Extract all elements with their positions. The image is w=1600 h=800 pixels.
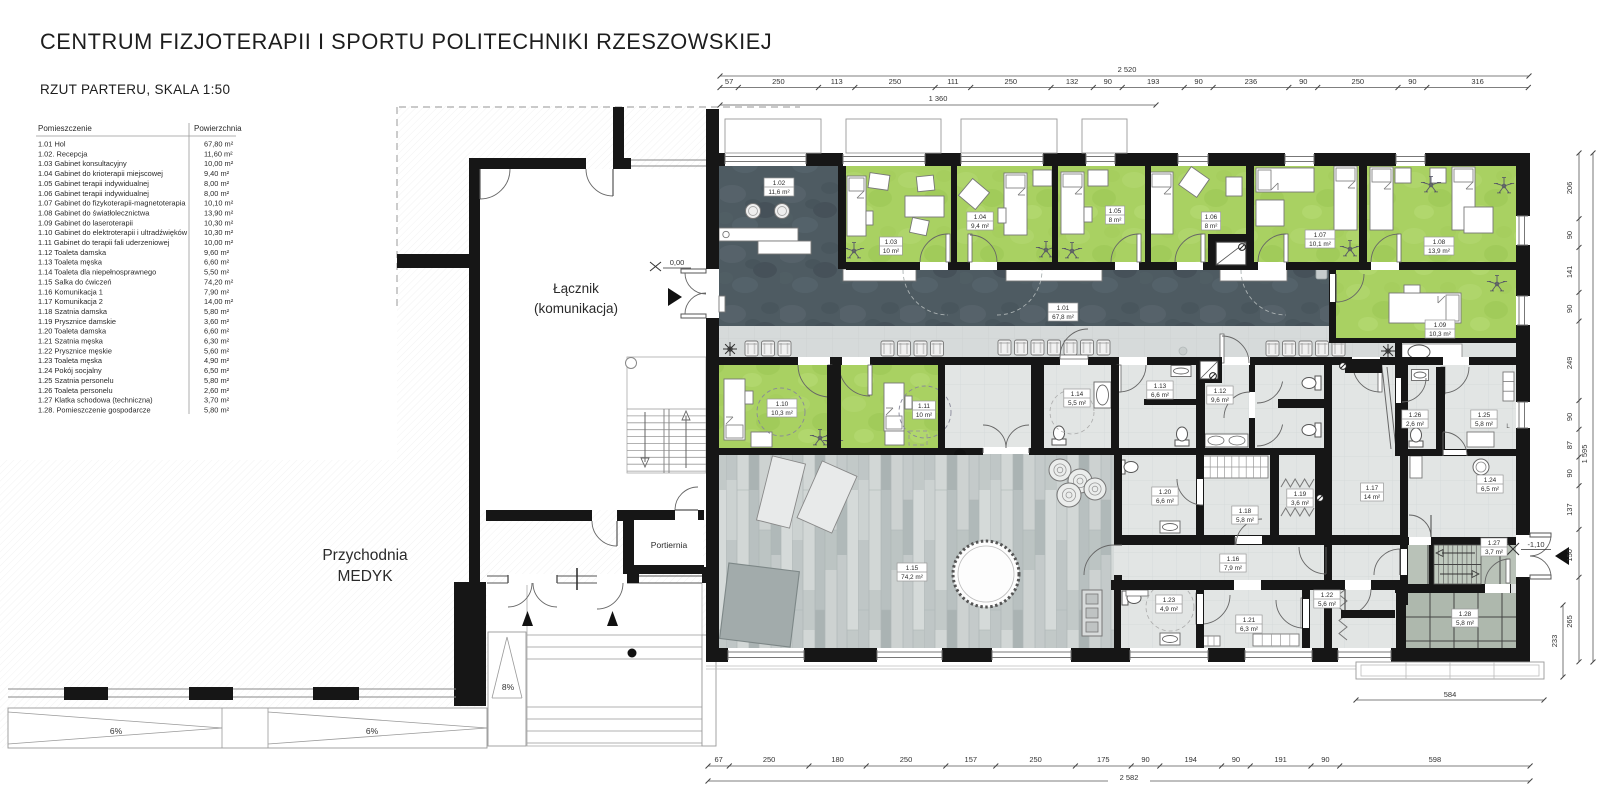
svg-text:3,70 m²: 3,70 m² bbox=[204, 396, 230, 405]
svg-text:5,6 m²: 5,6 m² bbox=[1318, 601, 1336, 608]
svg-text:1.17 Komunikacja 2: 1.17 Komunikacja 2 bbox=[38, 297, 103, 306]
svg-text:1.06 Gabinet terapii indywidua: 1.06 Gabinet terapii indywidualnej bbox=[38, 189, 149, 198]
svg-text:6,50 m²: 6,50 m² bbox=[204, 366, 230, 375]
svg-text:1.28: 1.28 bbox=[1459, 611, 1472, 618]
svg-text:90: 90 bbox=[1408, 77, 1416, 86]
svg-text:1.06: 1.06 bbox=[1205, 214, 1218, 221]
svg-text:175: 175 bbox=[1097, 755, 1110, 764]
svg-text:1.19 Prysznice damskie: 1.19 Prysznice damskie bbox=[38, 317, 116, 326]
svg-text:1.20: 1.20 bbox=[1159, 489, 1172, 496]
svg-text:14,00 m²: 14,00 m² bbox=[204, 297, 234, 306]
svg-text:1.10 Gabinet do elektroterapii: 1.10 Gabinet do elektroterapii i ultradź… bbox=[38, 228, 188, 237]
svg-text:6,60 m²: 6,60 m² bbox=[204, 258, 230, 267]
svg-text:206: 206 bbox=[1565, 182, 1574, 195]
svg-text:1.12: 1.12 bbox=[1214, 388, 1227, 395]
svg-text:90: 90 bbox=[1299, 77, 1307, 86]
svg-text:1.02: 1.02 bbox=[773, 180, 786, 187]
svg-text:3,6 m²: 3,6 m² bbox=[1291, 500, 1309, 507]
svg-text:4,90 m²: 4,90 m² bbox=[204, 356, 230, 365]
svg-text:1.05: 1.05 bbox=[1109, 208, 1122, 215]
svg-text:10,30 m²: 10,30 m² bbox=[204, 228, 234, 237]
svg-text:2,60 m²: 2,60 m² bbox=[204, 386, 230, 395]
svg-text:Pomieszczenie: Pomieszczenie bbox=[38, 124, 92, 133]
svg-text:1.27 Klatka schodowa (technicz: 1.27 Klatka schodowa (techniczna) bbox=[38, 396, 153, 405]
svg-text:5,80 m²: 5,80 m² bbox=[204, 376, 230, 385]
svg-text:250: 250 bbox=[772, 77, 785, 86]
svg-text:1.11 Gabinet do terapii fali u: 1.11 Gabinet do terapii fali uderzeniowe… bbox=[38, 238, 170, 247]
svg-text:1.14 Toaleta dla niepełnospraw: 1.14 Toaleta dla niepełnosprawnego bbox=[38, 268, 156, 277]
svg-text:1.24: 1.24 bbox=[1484, 477, 1497, 484]
svg-text:90: 90 bbox=[1141, 755, 1149, 764]
svg-text:5,50 m²: 5,50 m² bbox=[204, 268, 230, 277]
svg-text:250: 250 bbox=[889, 77, 902, 86]
svg-text:236: 236 bbox=[1245, 77, 1258, 86]
svg-text:67,80 m²: 67,80 m² bbox=[204, 140, 234, 149]
svg-text:1.18 Szatnia damska: 1.18 Szatnia damska bbox=[38, 307, 108, 316]
svg-text:2 582: 2 582 bbox=[1120, 773, 1139, 782]
svg-text:132: 132 bbox=[1066, 77, 1079, 86]
svg-text:9,40 m²: 9,40 m² bbox=[204, 169, 230, 178]
svg-text:6%: 6% bbox=[110, 726, 123, 736]
svg-text:6,5 m²: 6,5 m² bbox=[1481, 486, 1499, 493]
svg-text:90: 90 bbox=[1565, 305, 1574, 313]
svg-text:5,80 m²: 5,80 m² bbox=[204, 405, 230, 414]
svg-text:250: 250 bbox=[1005, 77, 1018, 86]
svg-text:265: 265 bbox=[1565, 615, 1574, 628]
svg-text:1 360: 1 360 bbox=[929, 94, 948, 103]
svg-text:74,2 m²: 74,2 m² bbox=[901, 574, 923, 581]
svg-text:1.27: 1.27 bbox=[1488, 540, 1501, 547]
svg-text:67: 67 bbox=[715, 755, 723, 764]
svg-text:1.16: 1.16 bbox=[1227, 556, 1240, 563]
svg-text:1.04: 1.04 bbox=[974, 214, 987, 221]
svg-text:137: 137 bbox=[1565, 503, 1574, 516]
svg-text:1.01: 1.01 bbox=[1057, 305, 1070, 312]
svg-text:1.20 Toaleta damska: 1.20 Toaleta damska bbox=[38, 327, 107, 336]
svg-text:-1,10: -1,10 bbox=[1527, 540, 1544, 549]
svg-text:1.15 Salka do ćwiczeń: 1.15 Salka do ćwiczeń bbox=[38, 277, 112, 286]
svg-text:1.23 Toaleta męska: 1.23 Toaleta męska bbox=[38, 356, 103, 365]
svg-text:6,3 m²: 6,3 m² bbox=[1240, 626, 1258, 633]
svg-text:1.01 Hol: 1.01 Hol bbox=[38, 140, 66, 149]
svg-text:584: 584 bbox=[1444, 690, 1457, 699]
svg-text:7,90 m²: 7,90 m² bbox=[204, 287, 230, 296]
svg-text:1.21: 1.21 bbox=[1243, 617, 1256, 624]
svg-text:67,8 m²: 67,8 m² bbox=[1052, 314, 1074, 321]
svg-text:141: 141 bbox=[1565, 266, 1574, 279]
svg-text:1.26 Toaleta personelu: 1.26 Toaleta personelu bbox=[38, 386, 113, 395]
svg-text:9,4 m²: 9,4 m² bbox=[971, 223, 989, 230]
svg-text:157: 157 bbox=[965, 755, 978, 764]
svg-text:5,8 m²: 5,8 m² bbox=[1456, 620, 1474, 627]
svg-text:1.13 Toaleta męska: 1.13 Toaleta męska bbox=[38, 258, 103, 267]
svg-text:4,9 m²: 4,9 m² bbox=[1160, 606, 1178, 613]
svg-text:316: 316 bbox=[1471, 77, 1484, 86]
svg-text:10,1 m²: 10,1 m² bbox=[1309, 241, 1331, 248]
svg-text:233: 233 bbox=[1550, 635, 1559, 648]
svg-text:1.04 Gabinet do krioterapii mi: 1.04 Gabinet do krioterapii miejscowej bbox=[38, 169, 163, 178]
svg-text:MEDYK: MEDYK bbox=[337, 568, 393, 585]
svg-text:9,60 m²: 9,60 m² bbox=[204, 248, 230, 257]
svg-text:1.14: 1.14 bbox=[1071, 391, 1084, 398]
svg-text:90: 90 bbox=[1565, 413, 1574, 421]
svg-text:1.09: 1.09 bbox=[1434, 322, 1447, 329]
svg-text:90: 90 bbox=[1194, 77, 1202, 86]
svg-text:1.13: 1.13 bbox=[1154, 383, 1167, 390]
svg-text:1.25: 1.25 bbox=[1478, 412, 1491, 419]
svg-text:1.07: 1.07 bbox=[1314, 232, 1327, 239]
svg-text:RZUT PARTERU, SKALA 1:50: RZUT PARTERU, SKALA 1:50 bbox=[40, 82, 230, 97]
svg-text:8 m²: 8 m² bbox=[1205, 223, 1218, 230]
svg-text:14 m²: 14 m² bbox=[1364, 494, 1380, 501]
svg-text:11,6 m²: 11,6 m² bbox=[768, 189, 789, 196]
svg-text:3,7 m²: 3,7 m² bbox=[1485, 549, 1503, 556]
svg-text:6,60 m²: 6,60 m² bbox=[204, 327, 230, 336]
svg-text:13,9 m²: 13,9 m² bbox=[1428, 248, 1450, 255]
svg-text:1.17: 1.17 bbox=[1366, 485, 1379, 492]
svg-text:1.10: 1.10 bbox=[776, 401, 789, 408]
svg-text:1.23: 1.23 bbox=[1163, 597, 1176, 604]
svg-text:3,60 m²: 3,60 m² bbox=[204, 317, 230, 326]
svg-text:1.26: 1.26 bbox=[1409, 412, 1422, 419]
svg-text:5,60 m²: 5,60 m² bbox=[204, 346, 230, 355]
svg-text:8,00 m²: 8,00 m² bbox=[204, 179, 230, 188]
svg-text:8 m²: 8 m² bbox=[1109, 217, 1122, 224]
svg-text:90: 90 bbox=[1232, 755, 1240, 764]
svg-text:6,6 m²: 6,6 m² bbox=[1151, 392, 1169, 399]
svg-text:1.12 Toaleta damska: 1.12 Toaleta damska bbox=[38, 248, 107, 257]
svg-text:1.03: 1.03 bbox=[885, 239, 898, 246]
svg-text:(komunikacja): (komunikacja) bbox=[534, 301, 618, 316]
svg-text:1.15: 1.15 bbox=[906, 565, 919, 572]
svg-text:87: 87 bbox=[1565, 441, 1574, 449]
svg-text:1.07 Gabinet do fizykoterapii-: 1.07 Gabinet do fizykoterapii-magnetoter… bbox=[38, 199, 186, 208]
svg-text:2 520: 2 520 bbox=[1118, 65, 1137, 74]
svg-text:10 m²: 10 m² bbox=[883, 248, 899, 255]
svg-text:8%: 8% bbox=[502, 682, 515, 692]
svg-text:598: 598 bbox=[1429, 755, 1442, 764]
svg-text:5,8 m²: 5,8 m² bbox=[1236, 517, 1254, 524]
svg-text:57: 57 bbox=[725, 77, 733, 86]
svg-text:194: 194 bbox=[1184, 755, 1197, 764]
svg-text:10,3 m²: 10,3 m² bbox=[1429, 331, 1451, 338]
svg-text:10,00 m²: 10,00 m² bbox=[204, 238, 234, 247]
svg-text:1.09 Gabinet do laseroterapii: 1.09 Gabinet do laseroterapii bbox=[38, 218, 133, 227]
svg-text:0,00: 0,00 bbox=[670, 258, 685, 267]
svg-text:10,3 m²: 10,3 m² bbox=[771, 410, 793, 417]
svg-text:6,6 m²: 6,6 m² bbox=[1156, 498, 1174, 505]
svg-text:74,20 m²: 74,20 m² bbox=[204, 277, 234, 286]
svg-text:1.08 Gabinet do światłolecznic: 1.08 Gabinet do światłolecznictwa bbox=[38, 208, 150, 217]
svg-text:1.25 Szatnia personelu: 1.25 Szatnia personelu bbox=[38, 376, 114, 385]
svg-text:113: 113 bbox=[831, 77, 843, 86]
svg-text:1.22: 1.22 bbox=[1321, 592, 1334, 599]
svg-text:10,00 m²: 10,00 m² bbox=[204, 159, 234, 168]
svg-text:1.05 Gabinet terapii indywidua: 1.05 Gabinet terapii indywidualnej bbox=[38, 179, 149, 188]
svg-text:90: 90 bbox=[1565, 231, 1574, 239]
svg-text:Łącznik: Łącznik bbox=[553, 281, 599, 296]
svg-text:250: 250 bbox=[1029, 755, 1042, 764]
svg-text:250: 250 bbox=[900, 755, 913, 764]
svg-text:2,6 m²: 2,6 m² bbox=[1406, 421, 1424, 428]
svg-text:111: 111 bbox=[947, 77, 958, 86]
svg-text:1.28. Pomieszczenie gospodarcz: 1.28. Pomieszczenie gospodarcze bbox=[38, 405, 151, 414]
svg-text:1.11: 1.11 bbox=[918, 403, 930, 410]
svg-text:9,6 m²: 9,6 m² bbox=[1211, 397, 1229, 404]
svg-text:11,60 m²: 11,60 m² bbox=[204, 149, 233, 158]
svg-text:5,5 m²: 5,5 m² bbox=[1068, 400, 1086, 407]
svg-text:10,10 m²: 10,10 m² bbox=[204, 199, 234, 208]
svg-text:5,8 m²: 5,8 m² bbox=[1475, 421, 1493, 428]
svg-text:191: 191 bbox=[1274, 755, 1287, 764]
svg-text:CENTRUM FIZJOTERAPII I SPORTU: CENTRUM FIZJOTERAPII I SPORTU POLITECHNI… bbox=[40, 29, 772, 54]
svg-text:7,9 m²: 7,9 m² bbox=[1224, 565, 1242, 572]
svg-text:1.19: 1.19 bbox=[1294, 491, 1307, 498]
svg-text:8,00 m²: 8,00 m² bbox=[204, 189, 230, 198]
svg-text:1.21 Szatnia męska: 1.21 Szatnia męska bbox=[38, 337, 104, 346]
svg-text:Portiernia: Portiernia bbox=[651, 540, 688, 550]
svg-text:249: 249 bbox=[1565, 357, 1574, 370]
svg-text:1 595: 1 595 bbox=[1580, 445, 1589, 464]
svg-text:1.16 Komunikacja 1: 1.16 Komunikacja 1 bbox=[38, 287, 103, 296]
svg-text:193: 193 bbox=[1147, 77, 1160, 86]
svg-text:5,80 m²: 5,80 m² bbox=[204, 307, 230, 316]
svg-text:90: 90 bbox=[1104, 77, 1112, 86]
svg-text:Powierzchnia: Powierzchnia bbox=[194, 124, 242, 133]
svg-text:250: 250 bbox=[763, 755, 776, 764]
svg-text:1.24 Pokój socjalny: 1.24 Pokój socjalny bbox=[38, 366, 102, 375]
svg-text:90: 90 bbox=[1321, 755, 1329, 764]
svg-text:1.18: 1.18 bbox=[1239, 508, 1252, 515]
svg-text:13,90 m²: 13,90 m² bbox=[204, 208, 234, 217]
svg-text:1.08: 1.08 bbox=[1433, 239, 1446, 246]
svg-text:1.22 Prysznice męskie: 1.22 Prysznice męskie bbox=[38, 346, 112, 355]
svg-text:1.02. Recepcja: 1.02. Recepcja bbox=[38, 149, 88, 158]
svg-text:Przychodnia: Przychodnia bbox=[322, 547, 408, 564]
svg-text:90: 90 bbox=[1565, 469, 1574, 477]
svg-text:6%: 6% bbox=[366, 726, 379, 736]
svg-text:1.03 Gabinet konsultacyjny: 1.03 Gabinet konsultacyjny bbox=[38, 159, 127, 168]
svg-text:10,30 m²: 10,30 m² bbox=[204, 218, 234, 227]
svg-text:180: 180 bbox=[831, 755, 844, 764]
svg-text:6,30 m²: 6,30 m² bbox=[204, 337, 230, 346]
svg-text:10 m²: 10 m² bbox=[916, 412, 932, 419]
svg-text:150: 150 bbox=[1565, 549, 1574, 562]
svg-text:250: 250 bbox=[1352, 77, 1365, 86]
